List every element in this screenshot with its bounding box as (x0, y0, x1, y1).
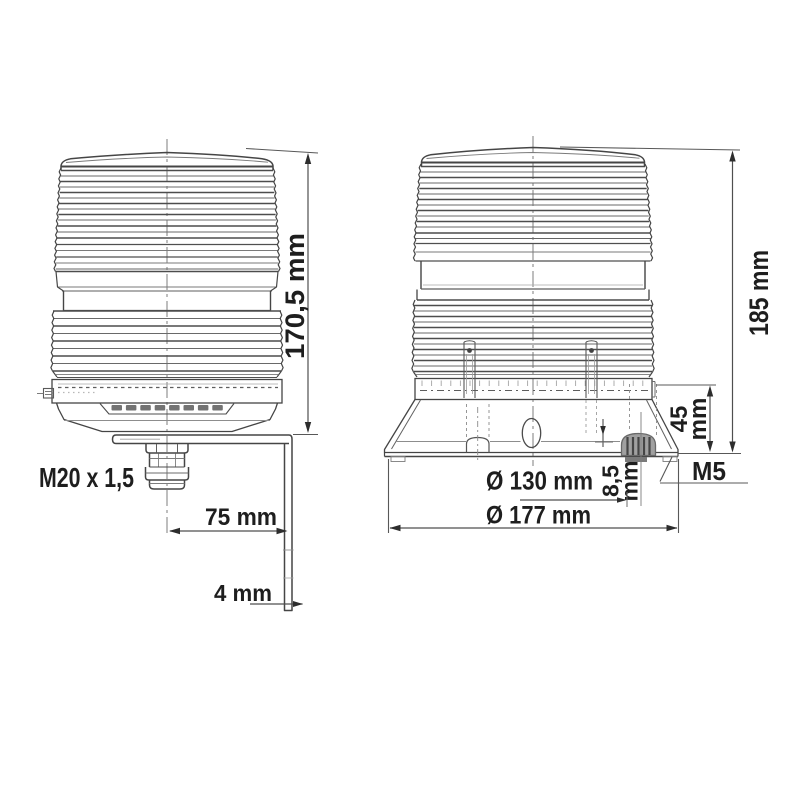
svg-text:M20 x 1,5: M20 x 1,5 (39, 462, 134, 493)
svg-text:75 mm: 75 mm (205, 504, 277, 531)
svg-text:4 mm: 4 mm (214, 580, 272, 606)
svg-text:Ø 177 mm: Ø 177 mm (486, 502, 591, 530)
svg-text:170,5 mm: 170,5 mm (280, 233, 310, 359)
svg-text:185 mm: 185 mm (744, 250, 774, 336)
svg-text:Ø 130 mm: Ø 130 mm (486, 466, 593, 496)
svg-text:mm: mm (617, 461, 643, 502)
svg-text:M5: M5 (692, 456, 726, 486)
svg-text:mm: mm (685, 398, 712, 441)
